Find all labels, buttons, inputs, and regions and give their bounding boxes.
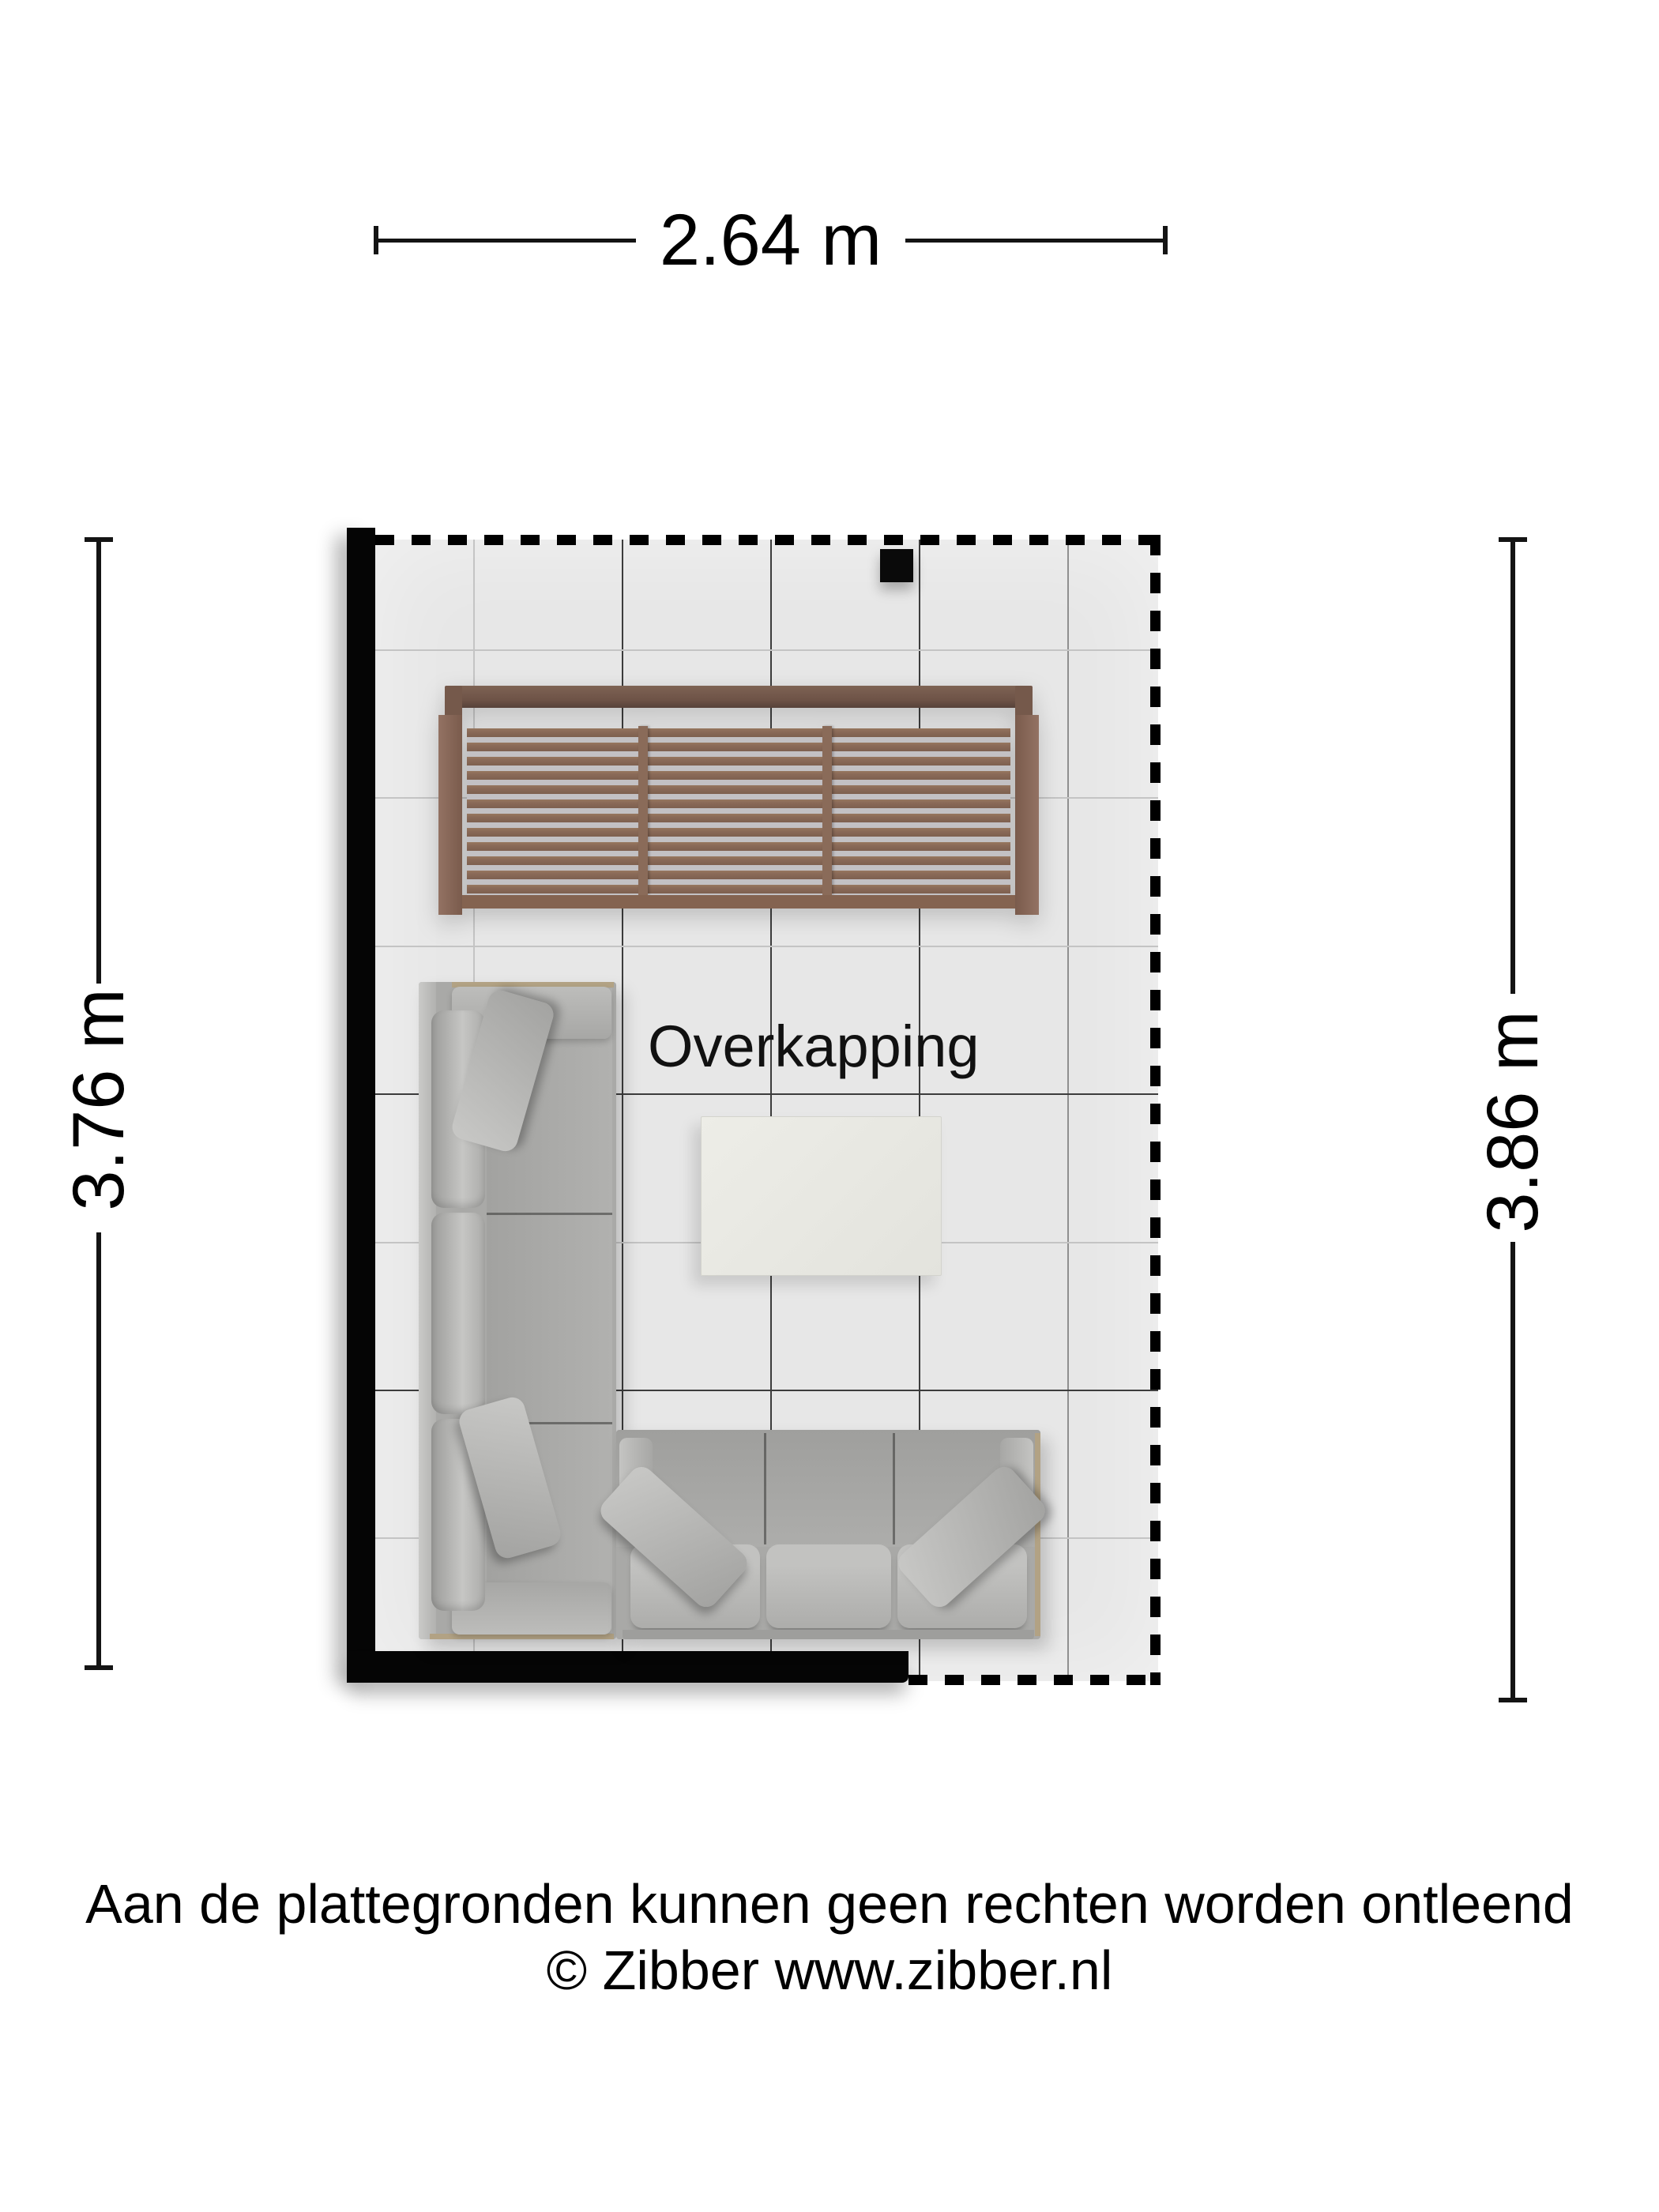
dashed-boundary-right — [1150, 535, 1161, 1685]
wall-left — [347, 528, 375, 1683]
pergola-rail — [638, 726, 648, 895]
floorplan-page: 2.64 m 3.76 m 3.86 m — [0, 0, 1659, 2212]
dimension-tick — [1499, 1698, 1527, 1702]
louvered-pergola-screen — [438, 680, 1039, 915]
pergola-slats — [467, 728, 1010, 895]
sofa-seam — [487, 1213, 612, 1215]
tile-gridline — [1067, 540, 1069, 1681]
sofa-trim — [1035, 1433, 1040, 1636]
sofa-base — [623, 1630, 1034, 1639]
post — [880, 549, 913, 582]
pergola-beam — [448, 686, 1029, 708]
tile-gridline — [375, 649, 1158, 651]
sofa-seat-cushion — [766, 1544, 891, 1628]
tile-gridline — [375, 946, 1158, 947]
room-label: Overkapping — [648, 1015, 980, 1078]
dimension-tick — [1163, 226, 1168, 254]
dimension-line — [96, 540, 101, 984]
dashed-boundary-top — [375, 535, 1158, 545]
dimension-top: 2.64 m — [374, 204, 1168, 276]
sofa-trim — [430, 1634, 614, 1639]
pergola-bottom-rail — [462, 895, 1015, 908]
coffee-table — [701, 1116, 942, 1276]
footer-disclaimer: Aan de plattegronden kunnen geen rechten… — [0, 1871, 1659, 1937]
sofa-seam — [764, 1433, 766, 1544]
pergola-stile — [1015, 715, 1039, 915]
corner-sofa-long-section — [419, 982, 616, 1639]
dimension-right-label: 3.86 m — [1477, 1010, 1549, 1232]
dimension-line — [1510, 540, 1515, 994]
wall-bottom — [347, 1651, 908, 1683]
footer-copyright: © Zibber www.zibber.nl — [0, 1937, 1659, 2003]
dimension-tick — [85, 1665, 113, 1670]
dimension-left-label: 3.76 m — [62, 988, 135, 1210]
sofa-seam — [893, 1433, 895, 1544]
pergola-rail — [822, 726, 832, 895]
dimension-line — [1510, 1242, 1515, 1700]
dimension-line — [378, 239, 636, 243]
dashed-boundary-bottom — [908, 1675, 1158, 1685]
pergola-stile — [438, 715, 462, 915]
footer: Aan de plattegronden kunnen geen rechten… — [0, 1871, 1659, 2003]
dimension-line — [905, 239, 1163, 243]
corner-sofa-short-section — [616, 1430, 1040, 1639]
dimension-top-label: 2.64 m — [636, 204, 905, 276]
sofa-back-cushion — [431, 1213, 485, 1414]
dimension-line — [96, 1232, 101, 1668]
